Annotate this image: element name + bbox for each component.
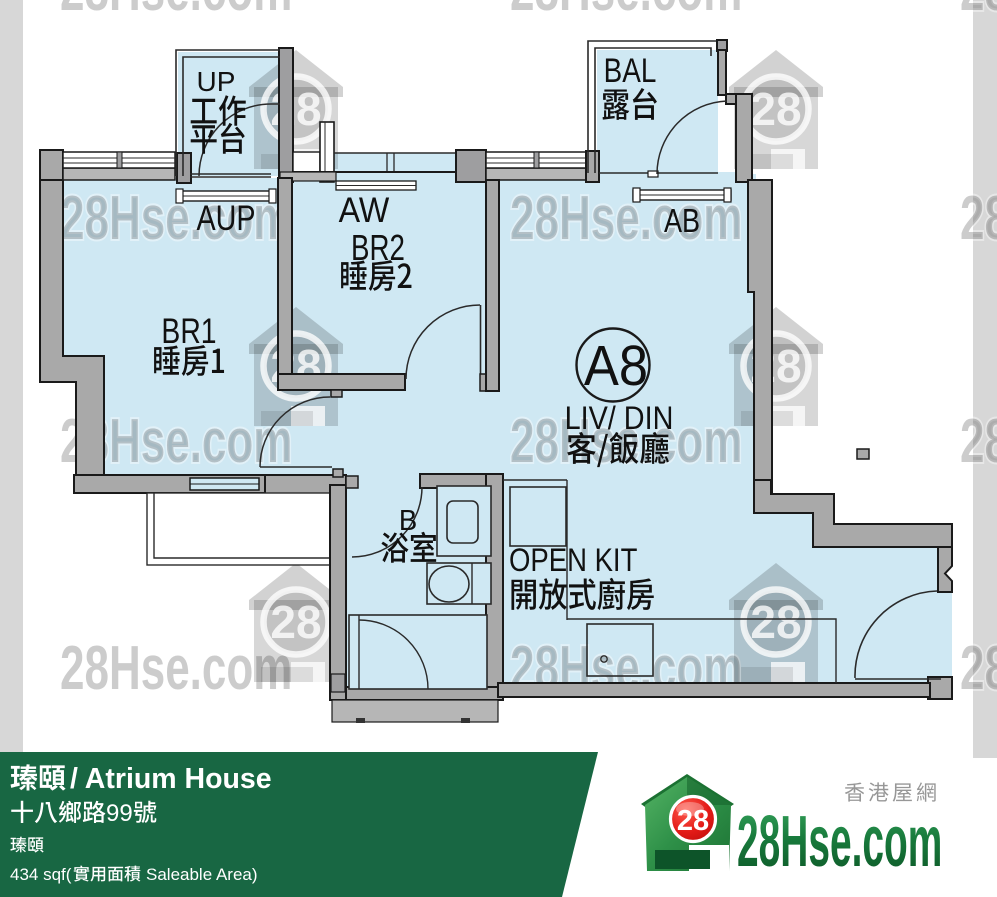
svg-text:BAL: BAL bbox=[604, 51, 657, 89]
svg-text:BR1: BR1 bbox=[161, 311, 216, 351]
svg-text:/ Atrium House: / Atrium House bbox=[70, 763, 272, 795]
svg-text:OPEN KIT: OPEN KIT bbox=[509, 543, 637, 578]
svg-text:99: 99 bbox=[106, 800, 133, 827]
svg-text:Saleable Area): Saleable Area) bbox=[146, 865, 258, 884]
svg-text:28: 28 bbox=[750, 83, 801, 135]
svg-text:28Hse.com: 28Hse.com bbox=[960, 184, 997, 253]
svg-text:AUP: AUP bbox=[196, 198, 255, 237]
svg-text:UP: UP bbox=[197, 66, 236, 97]
svg-text:28Hse.com: 28Hse.com bbox=[960, 634, 997, 703]
svg-text:AW: AW bbox=[339, 192, 390, 231]
svg-text:28Hse.com: 28Hse.com bbox=[960, 0, 997, 24]
svg-text:28: 28 bbox=[677, 805, 709, 837]
svg-text:28Hse.com: 28Hse.com bbox=[960, 407, 997, 476]
svg-text:B: B bbox=[399, 503, 417, 536]
svg-text:28: 28 bbox=[750, 596, 801, 648]
svg-text:AB: AB bbox=[664, 204, 700, 240]
svg-text:28Hse.com: 28Hse.com bbox=[60, 0, 292, 24]
svg-text:A8: A8 bbox=[584, 333, 648, 398]
svg-text:LIV/ DIN: LIV/ DIN bbox=[565, 401, 674, 437]
svg-text:28Hse.com: 28Hse.com bbox=[737, 803, 942, 883]
svg-text:434 sqf(: 434 sqf( bbox=[10, 865, 72, 884]
svg-text:28: 28 bbox=[270, 596, 321, 648]
svg-text:28Hse.com: 28Hse.com bbox=[510, 0, 742, 24]
